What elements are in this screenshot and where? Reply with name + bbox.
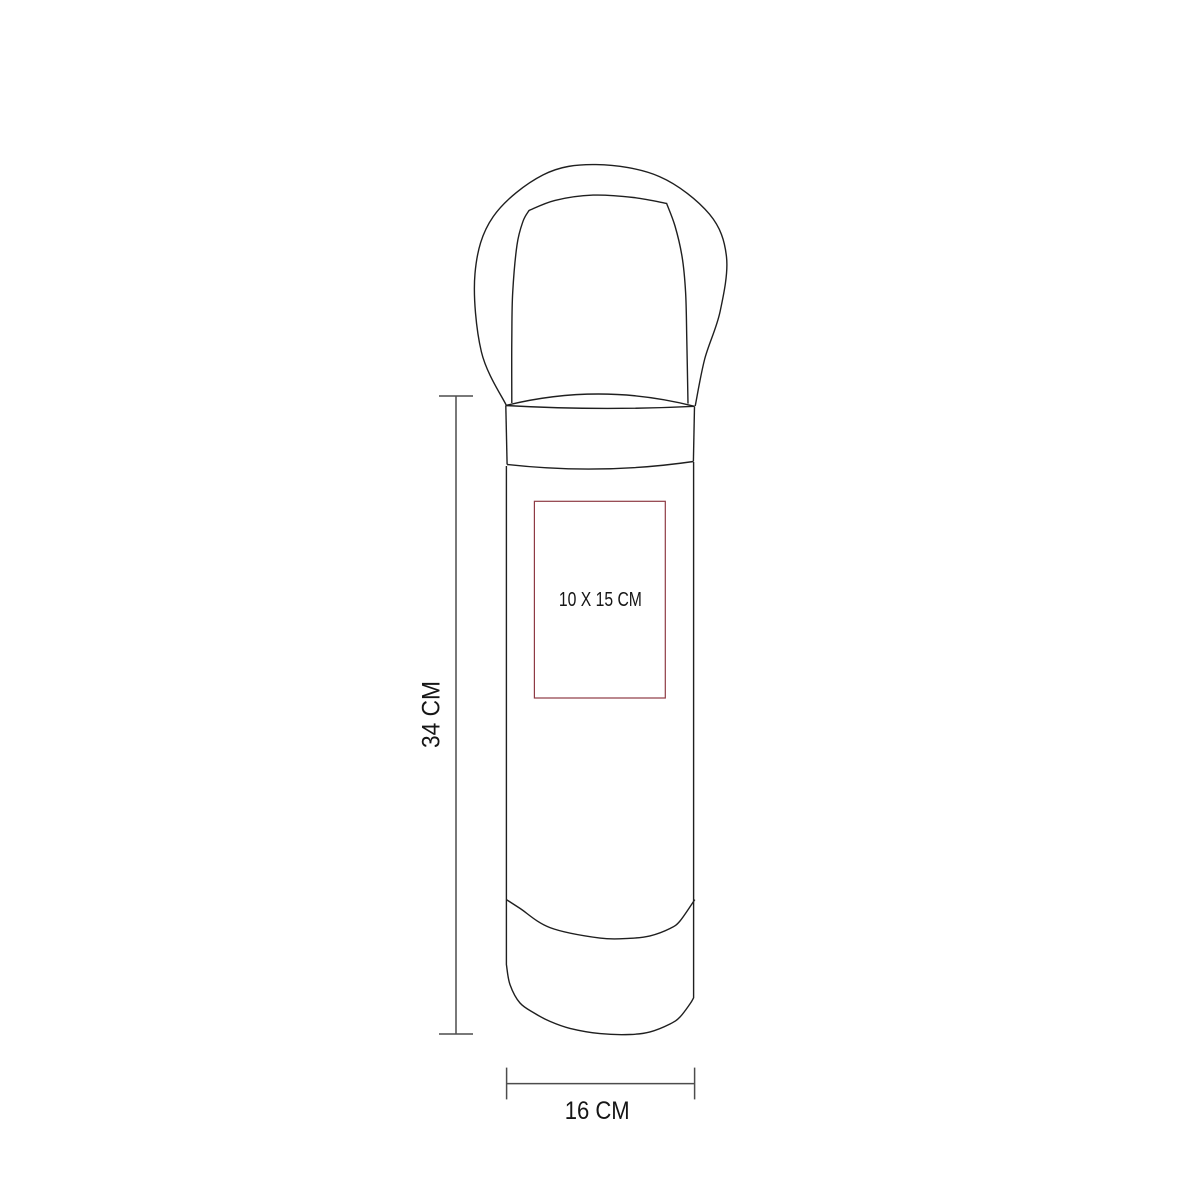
- svg-text:34 CM: 34 CM: [418, 681, 446, 748]
- svg-text:16 CM: 16 CM: [565, 1097, 630, 1125]
- svg-text:10 X 15 CM: 10 X 15 CM: [559, 588, 642, 611]
